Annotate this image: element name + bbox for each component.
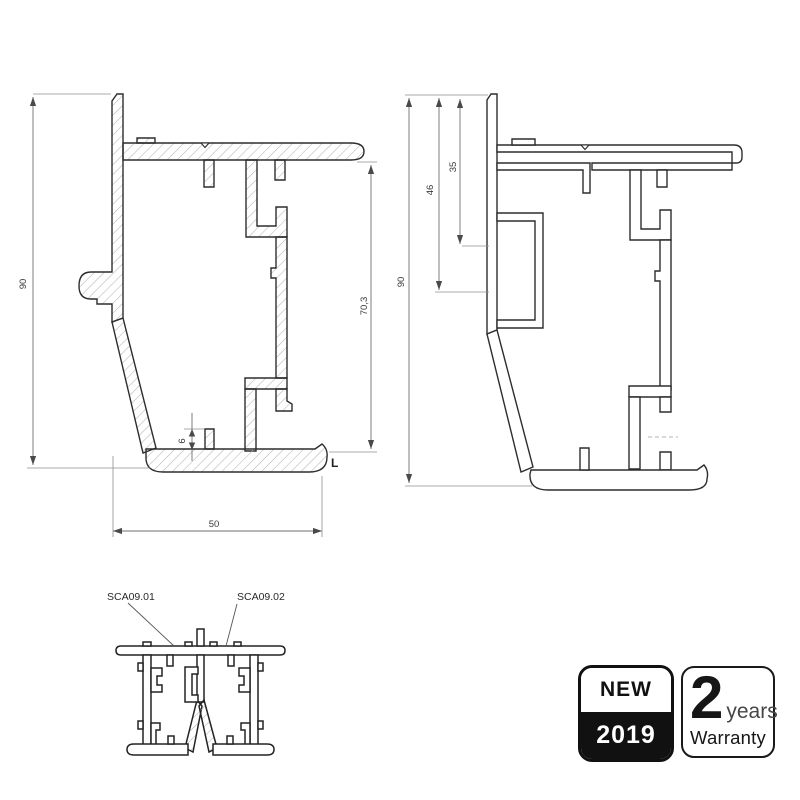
new-badge-top: NEW bbox=[581, 668, 671, 712]
warranty-value: 2 bbox=[690, 669, 723, 726]
right-profile-drawing: 90 46 35 bbox=[396, 94, 742, 490]
warranty-value-row: 2 years bbox=[690, 669, 773, 726]
assembly-top-web bbox=[116, 646, 285, 655]
new-2019-badge: NEW 2019 bbox=[578, 665, 674, 762]
left-lower-stub bbox=[276, 389, 292, 411]
warranty-unit: years bbox=[726, 700, 777, 724]
dim-right-channel-depth: 46 bbox=[425, 185, 436, 196]
new-badge-year-text: 2019 bbox=[596, 721, 656, 750]
left-profile-geometry bbox=[79, 94, 364, 472]
right-left-wall bbox=[487, 94, 497, 334]
left-lower-bar bbox=[245, 378, 287, 389]
assembly-flange-right bbox=[213, 744, 274, 755]
warranty-caption: Warranty bbox=[690, 727, 773, 749]
assembly-callouts: SCA09.01 SCA09.02 bbox=[107, 591, 285, 646]
leader-line-right bbox=[226, 604, 237, 646]
part-label-sca09-02: SCA09.02 bbox=[237, 591, 285, 603]
assembly-web-tab bbox=[143, 642, 151, 646]
assembly-web-tab bbox=[234, 642, 241, 646]
new-badge-year: 2019 bbox=[581, 712, 671, 759]
right-screw-box bbox=[497, 213, 543, 328]
assembly-flange-left bbox=[127, 744, 188, 755]
dim-right-top-offset: 35 bbox=[448, 162, 459, 173]
dim-right-overall-height: 90 bbox=[396, 277, 407, 288]
assembly-flange-rib bbox=[168, 736, 174, 744]
assembly-wall-tab bbox=[138, 721, 143, 729]
assembly-wall-tab bbox=[258, 663, 263, 671]
left-t-stub-1 bbox=[204, 160, 214, 187]
part-label-sca09-01: SCA09.01 bbox=[107, 591, 155, 603]
left-slant-wall bbox=[112, 318, 156, 453]
assembly-t-stub bbox=[228, 655, 234, 666]
left-top-web bbox=[123, 143, 364, 160]
drawing-canvas: 90 70,3 6 50 L bbox=[0, 0, 800, 800]
right-top-web bbox=[497, 145, 742, 163]
assembly-web-tab bbox=[185, 642, 192, 646]
dim-left-overall-width: 50 bbox=[209, 519, 220, 530]
left-t-stub-2 bbox=[275, 160, 285, 180]
left-right-wall bbox=[271, 237, 287, 378]
left-corner-label: L bbox=[331, 456, 338, 470]
right-lower-bar bbox=[629, 386, 671, 397]
right-inner-wall-2 bbox=[592, 163, 732, 170]
assembly-flange-rib bbox=[227, 736, 233, 744]
left-lower-leg bbox=[245, 389, 256, 451]
dim-left-inner-height: 70,3 bbox=[359, 297, 370, 316]
assembly-geometry bbox=[116, 629, 285, 755]
warranty-badge: 2 years Warranty bbox=[681, 666, 775, 758]
leader-line-left bbox=[128, 603, 174, 646]
dim-left-overall-height: 90 bbox=[18, 279, 29, 290]
assembly-right-wall bbox=[250, 655, 258, 747]
right-web-bump bbox=[512, 139, 535, 145]
assembly-web-tab bbox=[210, 642, 217, 646]
right-slant-wall bbox=[487, 330, 533, 472]
assembly-wall-tab bbox=[138, 663, 143, 671]
assembly-left-notch bbox=[151, 668, 162, 692]
assembly-center-spike bbox=[197, 629, 204, 646]
assembly-t-stub bbox=[167, 655, 173, 666]
right-lower-stub-bottom bbox=[660, 452, 671, 470]
assembly-wall-tab bbox=[258, 721, 263, 729]
assembly-left-wall bbox=[143, 655, 151, 747]
right-t-stub bbox=[657, 170, 667, 187]
technical-drawing-page: 90 70,3 6 50 L bbox=[0, 0, 800, 800]
right-lower-leg bbox=[629, 397, 640, 469]
assembly-right-notch bbox=[239, 668, 250, 692]
right-inner-wall-1 bbox=[497, 163, 590, 193]
left-profile-drawing: 90 70,3 6 50 L bbox=[18, 94, 377, 537]
dim-left-foot-rib: 6 bbox=[177, 438, 188, 443]
left-bottom-flange bbox=[146, 444, 327, 472]
right-lower-stub-top bbox=[660, 397, 671, 412]
new-badge-label: NEW bbox=[600, 678, 652, 702]
assembly-drawing: SCA09.01 SCA09.02 bbox=[107, 591, 285, 755]
assembly-center-clip bbox=[185, 667, 198, 702]
right-bottom-flange bbox=[530, 465, 708, 490]
right-profile-geometry bbox=[487, 94, 742, 490]
left-web-bump bbox=[137, 138, 155, 143]
right-right-wall bbox=[655, 240, 671, 390]
right-flange-rib bbox=[580, 448, 589, 470]
left-flange-rib bbox=[205, 429, 214, 449]
left-wall-and-hook bbox=[79, 94, 123, 322]
